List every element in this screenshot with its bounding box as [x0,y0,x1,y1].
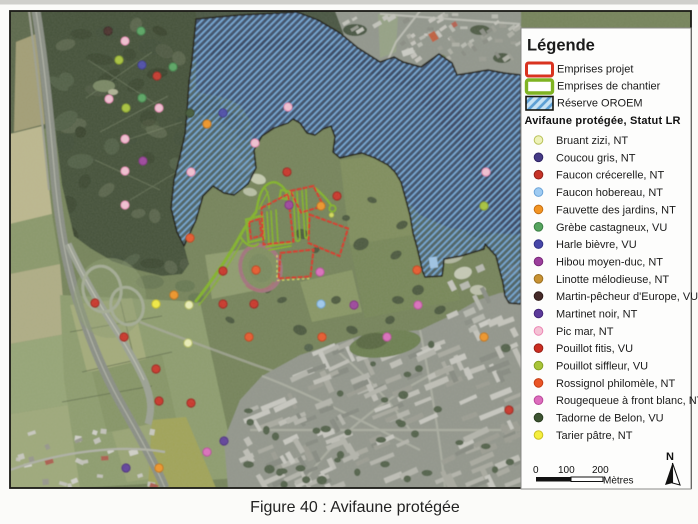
svg-text:Grèbe castagneux, VU: Grèbe castagneux, VU [556,222,667,234]
svg-text:Coucou gris, NT: Coucou gris, NT [556,152,636,164]
svg-text:Faucon hobereau, NT: Faucon hobereau, NT [556,187,663,199]
svg-text:Emprises de chantier: Emprises de chantier [557,81,661,93]
svg-text:Pouillot siffleur, VU: Pouillot siffleur, VU [556,361,648,373]
svg-text:Tarier pâtre, NT: Tarier pâtre, NT [556,430,633,442]
svg-text:Légende: Légende [527,37,595,55]
svg-text:Hibou moyen-duc, NT: Hibou moyen-duc, NT [556,257,663,269]
svg-text:Martinet noir, NT: Martinet noir, NT [556,309,638,321]
svg-text:Rougequeue à front blanc, NT: Rougequeue à front blanc, NT [556,395,698,407]
svg-text:200: 200 [592,465,609,476]
svg-text:100: 100 [558,465,575,476]
svg-text:N: N [666,451,674,463]
svg-text:Mètres: Mètres [603,476,634,487]
svg-text:Pouillot fitis, VU: Pouillot fitis, VU [556,343,633,355]
svg-text:Faucon crécerelle, NT: Faucon crécerelle, NT [556,170,664,182]
svg-text:Figure 40 : Avifaune protégée: Figure 40 : Avifaune protégée [250,499,460,516]
svg-text:0: 0 [533,465,539,476]
svg-text:Pic mar, NT: Pic mar, NT [556,326,614,338]
svg-text:Fauvette des jardins, NT: Fauvette des jardins, NT [556,204,676,216]
svg-text:Harle bièvre, VU: Harle bièvre, VU [556,239,637,251]
svg-text:Réserve OROEM: Réserve OROEM [557,98,643,110]
svg-text:Emprises projet: Emprises projet [557,64,633,76]
svg-text:Rossignol philomèle, NT: Rossignol philomèle, NT [556,378,675,390]
svg-text:Bruant zizi, NT: Bruant zizi, NT [556,135,628,147]
svg-text:Martin-pêcheur d'Europe, VU: Martin-pêcheur d'Europe, VU [556,291,698,303]
svg-text:Avifaune protégée, Statut LR: Avifaune protégée, Statut LR [525,115,681,127]
svg-text:Linotte mélodieuse, NT: Linotte mélodieuse, NT [556,274,669,286]
svg-text:Tadorne de Belon, VU: Tadorne de Belon, VU [556,413,664,425]
